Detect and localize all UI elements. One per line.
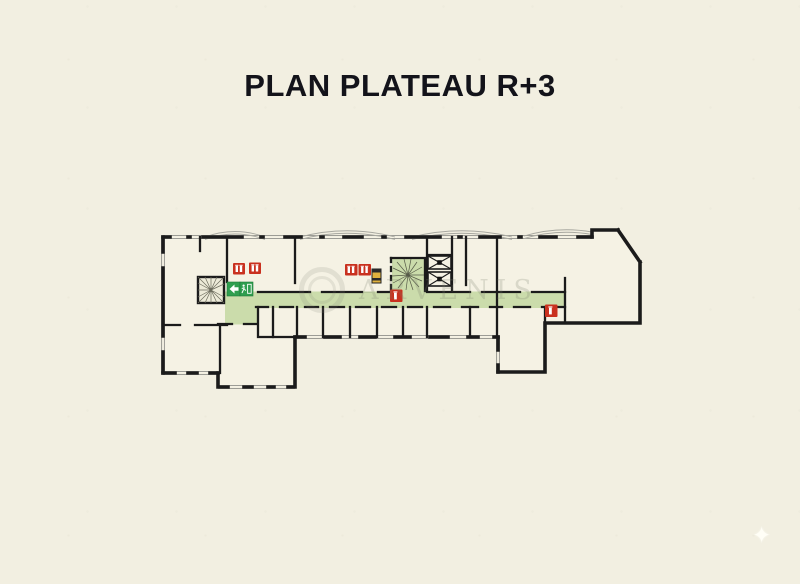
fire-safety-sign-icon (545, 305, 558, 318)
fire-safety-sign-icon (233, 263, 245, 275)
electrical-panel-icon (372, 269, 381, 283)
sparkle-icon: ✦ (752, 522, 771, 549)
page-canvas: { "title": { "text": "PLAN PLATEAU R+3" … (0, 0, 800, 584)
floor-plan (0, 0, 800, 584)
left-staircase (198, 277, 224, 303)
exit-sign (227, 282, 253, 296)
fire-safety-sign-icon (390, 290, 403, 303)
fire-safety-sign-icon (345, 264, 358, 276)
fire-safety-sign-icon (249, 263, 261, 275)
fire-safety-sign-icon (359, 264, 372, 276)
